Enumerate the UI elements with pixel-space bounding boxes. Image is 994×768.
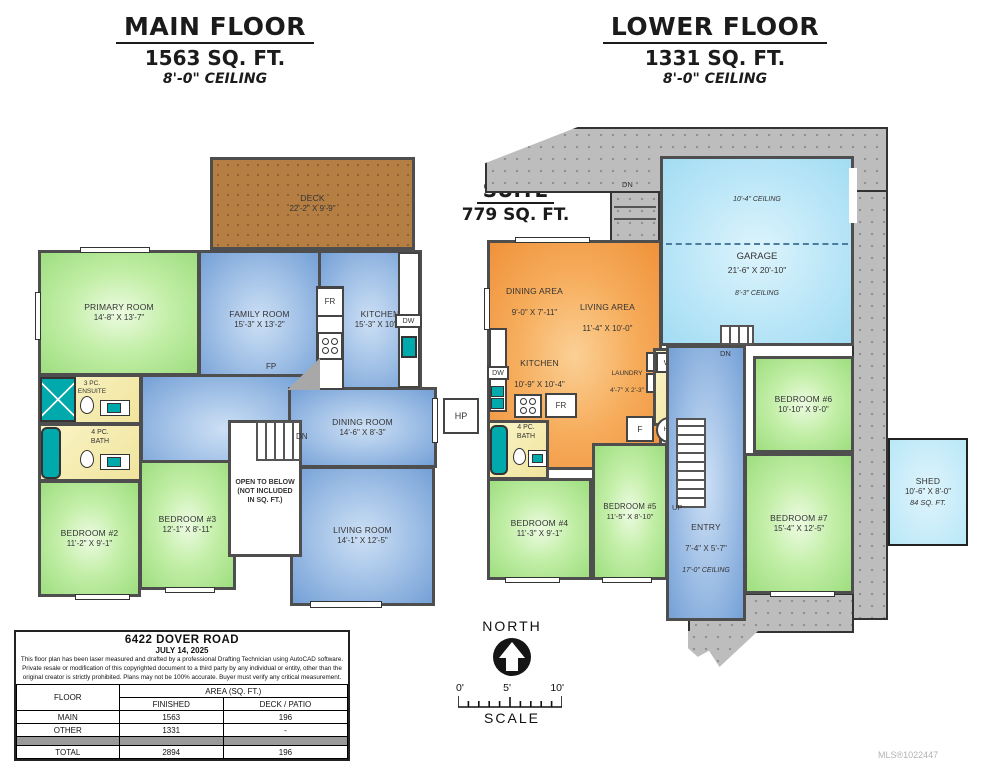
room-label: GARAGE xyxy=(663,251,851,263)
main-floor-ceiling: 8'-0" CEILING xyxy=(85,71,345,87)
window-bay xyxy=(310,601,382,608)
room-dims: 9'-0" X 7'-11" xyxy=(512,308,558,317)
concrete-patio-tail xyxy=(688,631,758,667)
entry-label: ENTRY 7'-4" X 5'-7" 17'-0" CEILING xyxy=(656,512,756,575)
room-bedroom4: BEDROOM #4 11'-3" X 9'-1" xyxy=(487,478,592,580)
lower-floor-title: LOWER FLOOR xyxy=(603,12,827,44)
window xyxy=(602,577,652,583)
scale-ticks: 0' 5' 10' xyxy=(456,682,564,694)
spacer-row xyxy=(17,737,348,746)
window xyxy=(432,398,438,443)
room-deck: DECK 22'-2" X 9'-9" xyxy=(210,157,415,250)
room-label: SHED xyxy=(916,476,940,487)
heat-pump-tag: HP xyxy=(443,398,479,434)
window xyxy=(75,594,130,600)
garage-door-opening xyxy=(849,168,857,223)
cell-deck-total: 196 xyxy=(223,746,347,759)
room-dims: 21'-6" X 20'-10" xyxy=(663,265,851,276)
kitchen-sink-main xyxy=(401,336,417,358)
vanity-sink-ensuite xyxy=(107,403,121,413)
suite-area: 779 SQ. FT. xyxy=(448,205,583,225)
room-dims: 12'-1" X 8'-11" xyxy=(163,525,213,535)
stairs-down-main xyxy=(256,421,301,461)
toilet-bath-main xyxy=(80,450,94,468)
area-table: FLOOR AREA (SQ. FT.) FINISHED DECK / PAT… xyxy=(16,684,348,759)
room-dims: 15'-3" X 13'-2" xyxy=(234,320,285,330)
cell-deck: 196 xyxy=(223,711,347,724)
burner xyxy=(331,347,338,354)
table-row: MAIN 1563 196 xyxy=(17,711,348,724)
open-to-below-label: OPEN TO BELOW (NOT INCLUDED IN SQ. FT.) xyxy=(235,478,294,505)
burner xyxy=(529,407,536,414)
main-floor-title: MAIN FLOOR xyxy=(116,12,314,44)
dn-label-main: DN xyxy=(296,432,308,442)
col-area: AREA (SQ. FT.) xyxy=(119,685,347,698)
room-living-area: LIVING AREA 11'-4" X 10'-0" xyxy=(555,292,660,335)
fireplace-label: FP xyxy=(266,362,276,372)
step-line xyxy=(614,218,656,220)
date: JULY 14, 2025 xyxy=(16,646,348,655)
total-row: TOTAL 2894 196 xyxy=(17,746,348,759)
col-deck: DECK / PATIO xyxy=(223,698,347,711)
burner xyxy=(322,347,329,354)
main-floor-header: MAIN FLOOR 1563 SQ. FT. 8'-0" CEILING xyxy=(85,12,345,87)
dishwasher-tag-main: DW xyxy=(395,314,422,328)
room-laundry-suite: LAUNDRY 4'-7" X 2'-3" xyxy=(603,362,651,396)
garage-ceiling-low: 8'-3" CEILING xyxy=(663,289,851,298)
room-label: BEDROOM #2 xyxy=(61,528,119,539)
cell-finished-total: 2894 xyxy=(119,746,223,759)
room-dims: 22'-2" X 9'-9" xyxy=(289,204,335,214)
room-living: LIVING ROOM 14'-1" X 12'-5" xyxy=(290,466,435,606)
garage-ceiling-divider xyxy=(666,243,848,245)
scale-label: SCALE xyxy=(458,710,566,726)
vanity-sink-bath-main xyxy=(107,457,121,467)
room-family: FAMILY ROOM 15'-3" X 13'-2" xyxy=(198,250,321,390)
burner xyxy=(520,407,527,414)
room-label: PRIMARY ROOM xyxy=(84,302,154,313)
north-arrow-icon xyxy=(492,637,532,682)
window xyxy=(515,237,590,243)
room-label: DINING ROOM xyxy=(332,417,393,428)
dn-label-exterior: DN xyxy=(622,180,633,190)
room-label: ENTRY xyxy=(691,522,721,532)
room-bedroom3: BEDROOM #3 12'-1" X 8'-11" xyxy=(139,460,236,590)
stove-main xyxy=(317,332,343,360)
scale-tick-5: 5' xyxy=(503,682,511,694)
scale-tick-10: 10' xyxy=(550,682,564,694)
lower-floor-ceiling: 8'-0" CEILING xyxy=(585,71,845,87)
room-bedroom6: BEDROOM #6 10'-10" X 9'-0" xyxy=(753,356,854,453)
room-dims: 15'-4" X 12'-5" xyxy=(774,524,825,534)
stove-suite xyxy=(514,394,542,418)
garage-ceiling-high: 10'-4" CEILING xyxy=(663,195,851,204)
room-label: KITCHEN xyxy=(361,309,400,320)
toilet-bath-lower xyxy=(513,448,526,465)
cell-finished: 1563 xyxy=(119,711,223,724)
tub-main xyxy=(41,427,61,479)
burner xyxy=(520,398,527,405)
window xyxy=(505,577,560,583)
furnace-tag: F xyxy=(626,416,654,442)
window xyxy=(770,591,835,597)
lower-floor-area: 1331 SQ. FT. xyxy=(585,46,845,70)
floor-plan-canvas: MAIN FLOOR 1563 SQ. FT. 8'-0" CEILING LO… xyxy=(0,0,994,768)
fridge-tag-suite: FR xyxy=(545,393,577,418)
scale-tick-0: 0' xyxy=(456,682,464,694)
dishwasher-tag-suite: DW xyxy=(487,366,509,380)
room-dims: 11'-3" X 9'-1" xyxy=(517,529,563,539)
cell-deck: - xyxy=(223,724,347,737)
concrete-side-walk xyxy=(852,190,888,620)
room-dims: 11'-4" X 10'-0" xyxy=(583,324,633,333)
vanity-sink-bath-lower xyxy=(532,454,543,463)
window xyxy=(484,288,490,330)
burner xyxy=(529,398,536,405)
room-dims: 10'-10" X 9'-0" xyxy=(778,405,829,415)
entry-ceiling: 17'-0" CEILING xyxy=(682,567,730,574)
window xyxy=(35,292,41,340)
burner xyxy=(322,338,329,345)
room-dims: 14'-1" X 12'-5" xyxy=(337,536,388,546)
col-floor: FLOOR xyxy=(17,685,120,711)
table-row: OTHER 1331 - xyxy=(17,724,348,737)
address: 6422 DOVER ROAD xyxy=(16,632,348,646)
mls-watermark: MLS®1022447 xyxy=(878,750,938,760)
room-label: BEDROOM #4 xyxy=(511,518,569,529)
room-dims: 4'-7" X 2'-3" xyxy=(610,387,644,394)
room-label: KITCHEN xyxy=(520,358,559,368)
fridge-tag-main: FR xyxy=(316,287,344,317)
room-dims: 14'-8" X 13'-7" xyxy=(94,313,145,323)
window xyxy=(80,247,150,253)
room-dims: 10'-6" X 8'-0" xyxy=(905,487,951,497)
room-dims: 11'-5" X 8'-10" xyxy=(607,512,654,522)
room-label: FAMILY ROOM xyxy=(229,309,289,320)
north-label: NORTH xyxy=(458,618,566,634)
room-label: LIVING ROOM xyxy=(333,525,392,536)
cell-floor-total: TOTAL xyxy=(17,746,120,759)
sink-suite xyxy=(491,398,504,409)
room-primary: PRIMARY ROOM 14'-8" X 13'-7" xyxy=(38,250,200,376)
cell-finished: 1331 xyxy=(119,724,223,737)
window xyxy=(165,587,215,593)
main-floor-area: 1563 SQ. FT. xyxy=(85,46,345,70)
info-box: 6422 DOVER ROAD JULY 14, 2025 This floor… xyxy=(14,630,350,761)
cell-floor: OTHER xyxy=(17,724,120,737)
room-dims: 7'-4" X 5'-7" xyxy=(685,544,727,553)
lower-floor-header: LOWER FLOOR 1331 SQ. FT. 8'-0" CEILING xyxy=(585,12,845,87)
step-line xyxy=(614,206,656,208)
disclaimer: This floor plan has been laser measured … xyxy=(16,655,348,684)
room-bedroom7: BEDROOM #7 15'-4" X 12'-5" xyxy=(744,453,854,594)
dn-label-entry: DN xyxy=(720,349,731,359)
bath-lower-label: 4 PC. BATH xyxy=(505,423,547,441)
room-label: LAUNDRY xyxy=(612,370,643,377)
room-label: DECK xyxy=(300,193,324,204)
tub-lower xyxy=(490,425,508,475)
room-label: BEDROOM #3 xyxy=(159,514,217,525)
room-shed: SHED 10'-6" X 8'-0" 84 SQ. FT. xyxy=(888,438,968,546)
room-dims: 14'-6" X 8'-3" xyxy=(339,428,385,438)
burner xyxy=(331,338,338,345)
room-label: BEDROOM #7 xyxy=(770,513,828,524)
ensuite-label: 3 PC. ENSUITE xyxy=(62,380,122,397)
stairs-garage-down xyxy=(720,325,754,345)
room-label: BEDROOM #6 xyxy=(775,394,833,405)
room-label: BEDROOM #5 xyxy=(603,502,656,512)
room-bedroom2: BEDROOM #2 11'-2" X 9'-1" xyxy=(38,480,141,597)
shed-area: 84 SQ. FT. xyxy=(910,498,946,508)
room-dining: DINING ROOM 14'-6" X 8'-3" xyxy=(288,387,437,468)
bath-main-label: 4 PC. BATH xyxy=(70,428,130,446)
room-dims: 11'-2" X 9'-1" xyxy=(67,539,113,549)
concrete-stair-strip xyxy=(610,191,660,242)
room-dims: 10'-9" X 10'-4" xyxy=(514,380,565,389)
room-label: LIVING AREA xyxy=(580,302,635,312)
stairs-up-entry xyxy=(676,418,706,508)
toilet-ensuite xyxy=(80,396,94,414)
room-garage: 10'-4" CEILING GARAGE 21'-6" X 20'-10" 8… xyxy=(660,156,854,346)
cell-floor: MAIN xyxy=(17,711,120,724)
sink-suite xyxy=(491,386,504,397)
col-finished: FINISHED xyxy=(119,698,223,711)
